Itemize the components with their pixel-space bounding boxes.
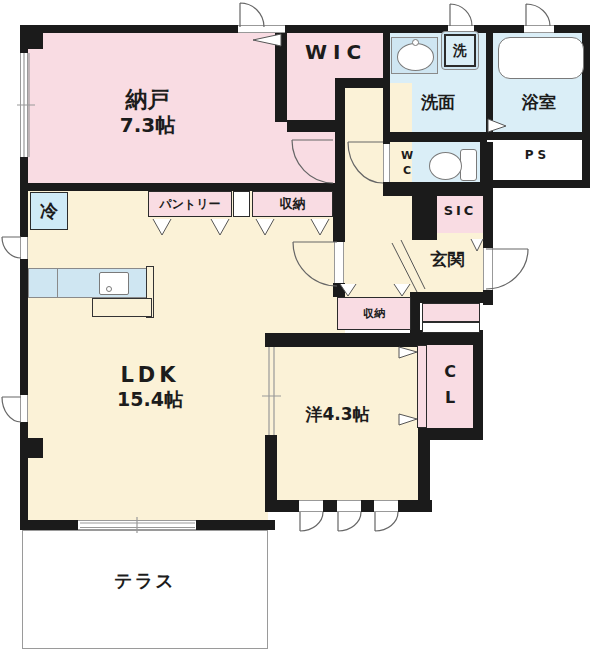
wall (390, 132, 487, 142)
faucet (412, 39, 419, 46)
door-opening (337, 500, 361, 512)
storage-hall-label: 収納 (363, 306, 385, 321)
door-opening (20, 395, 28, 422)
wall (473, 330, 483, 440)
wall (483, 180, 590, 188)
door-opening (383, 144, 390, 182)
wall (333, 183, 345, 242)
fridge-label: 冷 (40, 199, 58, 223)
storage-top-label: 収納 (280, 195, 306, 213)
cl-line2: L (445, 385, 455, 411)
counter-edge (92, 298, 152, 317)
bathtub (498, 37, 584, 79)
window-arc (450, 4, 472, 26)
room-label-sic: SIC (437, 198, 483, 224)
pantry-label: パントリー (159, 196, 220, 213)
window-opening (78, 520, 196, 530)
kitchen-faucet (106, 286, 112, 292)
door-opening (20, 237, 28, 259)
ldk-size: 15.4帖 (117, 388, 183, 412)
laundry-label: 洗 (453, 42, 467, 60)
cl-sliding-door (417, 345, 427, 428)
wall (483, 288, 493, 305)
door-opening (299, 500, 323, 512)
room-label-wc: W C (394, 142, 420, 184)
entrance-door-opening (483, 248, 493, 290)
wc-line2: C (403, 163, 411, 178)
wall (275, 27, 287, 122)
window-arc (526, 4, 550, 26)
door-arc (240, 3, 264, 27)
room-label-wic: WIC (287, 36, 385, 68)
wall (28, 33, 43, 49)
room-label-nando: 納戸 7.3帖 (70, 72, 225, 152)
wall (333, 283, 345, 297)
room-label-western: 洋4.3帖 (270, 398, 405, 432)
toilet-bowl (429, 152, 462, 180)
room-label-terrace: テラス (75, 562, 215, 600)
room-label-cl: C L (430, 348, 470, 422)
room-label-senmen: 洗面 (392, 88, 484, 118)
room-label-ldk: LDK 15.4帖 (75, 352, 225, 422)
door-arc (300, 512, 323, 531)
room-label-genkan: 玄関 (412, 243, 483, 277)
storage-hall-box: 収納 (337, 297, 411, 330)
door-arc (375, 512, 398, 531)
wc-line1: W (401, 148, 413, 163)
wall (412, 292, 483, 303)
kitchen-counter (28, 268, 151, 298)
nando-size: 7.3帖 (120, 113, 175, 138)
washer-pan: 洗 (441, 31, 479, 70)
cl-line1: C (444, 359, 456, 385)
wall (335, 78, 390, 88)
door-opening (238, 25, 285, 33)
wall (483, 196, 493, 248)
wall (287, 120, 335, 132)
room-wic-floor-lobe (287, 78, 335, 120)
door-arc (2, 237, 21, 258)
wall (20, 25, 590, 33)
toilet-tank (460, 149, 477, 181)
room-label-ps: PS (495, 143, 580, 167)
storage-top-box: 収納 (252, 191, 333, 217)
fridge-space-box: 冷 (30, 192, 68, 230)
window-opening (524, 25, 554, 33)
entrance-step (422, 322, 480, 333)
ldk-name: LDK (120, 362, 179, 388)
wall (412, 196, 437, 240)
sink-basin (397, 43, 434, 71)
wall (480, 142, 493, 182)
entrance-step (422, 303, 480, 322)
wall (383, 182, 493, 196)
wall (265, 333, 425, 347)
door-arc (338, 512, 361, 531)
floor-plan: パントリー 収納 冷 収納 洗 (0, 0, 600, 652)
wall-gap-box (233, 191, 250, 217)
door-opening (374, 500, 398, 512)
door-opening (334, 242, 344, 283)
room-label-bath: 浴室 (495, 88, 583, 118)
wall-pillar (28, 438, 43, 458)
door-arc (2, 397, 21, 422)
wall (335, 78, 345, 185)
window-opening (20, 53, 28, 157)
counter-divider (57, 269, 58, 297)
washing-machine: 洗 (444, 34, 476, 67)
wall (265, 435, 277, 510)
pantry-box: パントリー (148, 191, 232, 217)
nando-name: 納戸 (126, 86, 170, 114)
kitchen-sink (99, 272, 129, 295)
wall (20, 183, 345, 191)
wall (487, 132, 590, 140)
wall (486, 33, 493, 140)
